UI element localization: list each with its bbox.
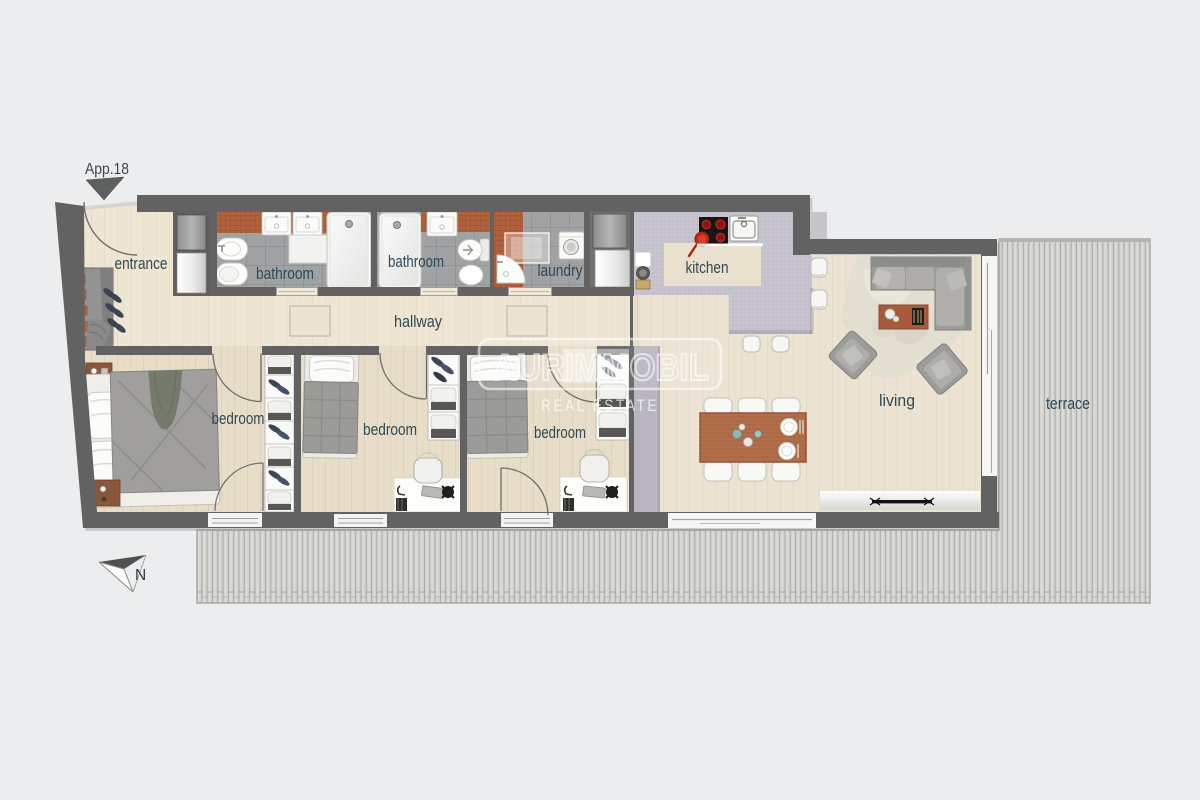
svg-text:terrace: terrace	[1046, 394, 1090, 413]
svg-text:hallway: hallway	[394, 312, 442, 331]
svg-text:kitchen: kitchen	[686, 258, 729, 277]
svg-text:entrance: entrance	[115, 254, 168, 273]
svg-text:laundry: laundry	[538, 261, 583, 280]
svg-text:bathroom: bathroom	[388, 252, 444, 271]
svg-text:bedroom: bedroom	[363, 420, 417, 439]
svg-text:bedroom: bedroom	[534, 423, 586, 442]
svg-text:living: living	[879, 391, 915, 410]
svg-text:bedroom: bedroom	[212, 409, 265, 428]
svg-text:REAL ESTATE: REAL ESTATE	[541, 397, 659, 415]
svg-text:App.18: App.18	[85, 161, 129, 178]
svg-text:AURIMMOBIL: AURIMMOBIL	[493, 347, 709, 388]
svg-text:bathroom: bathroom	[256, 264, 314, 283]
svg-text:N: N	[135, 567, 146, 584]
